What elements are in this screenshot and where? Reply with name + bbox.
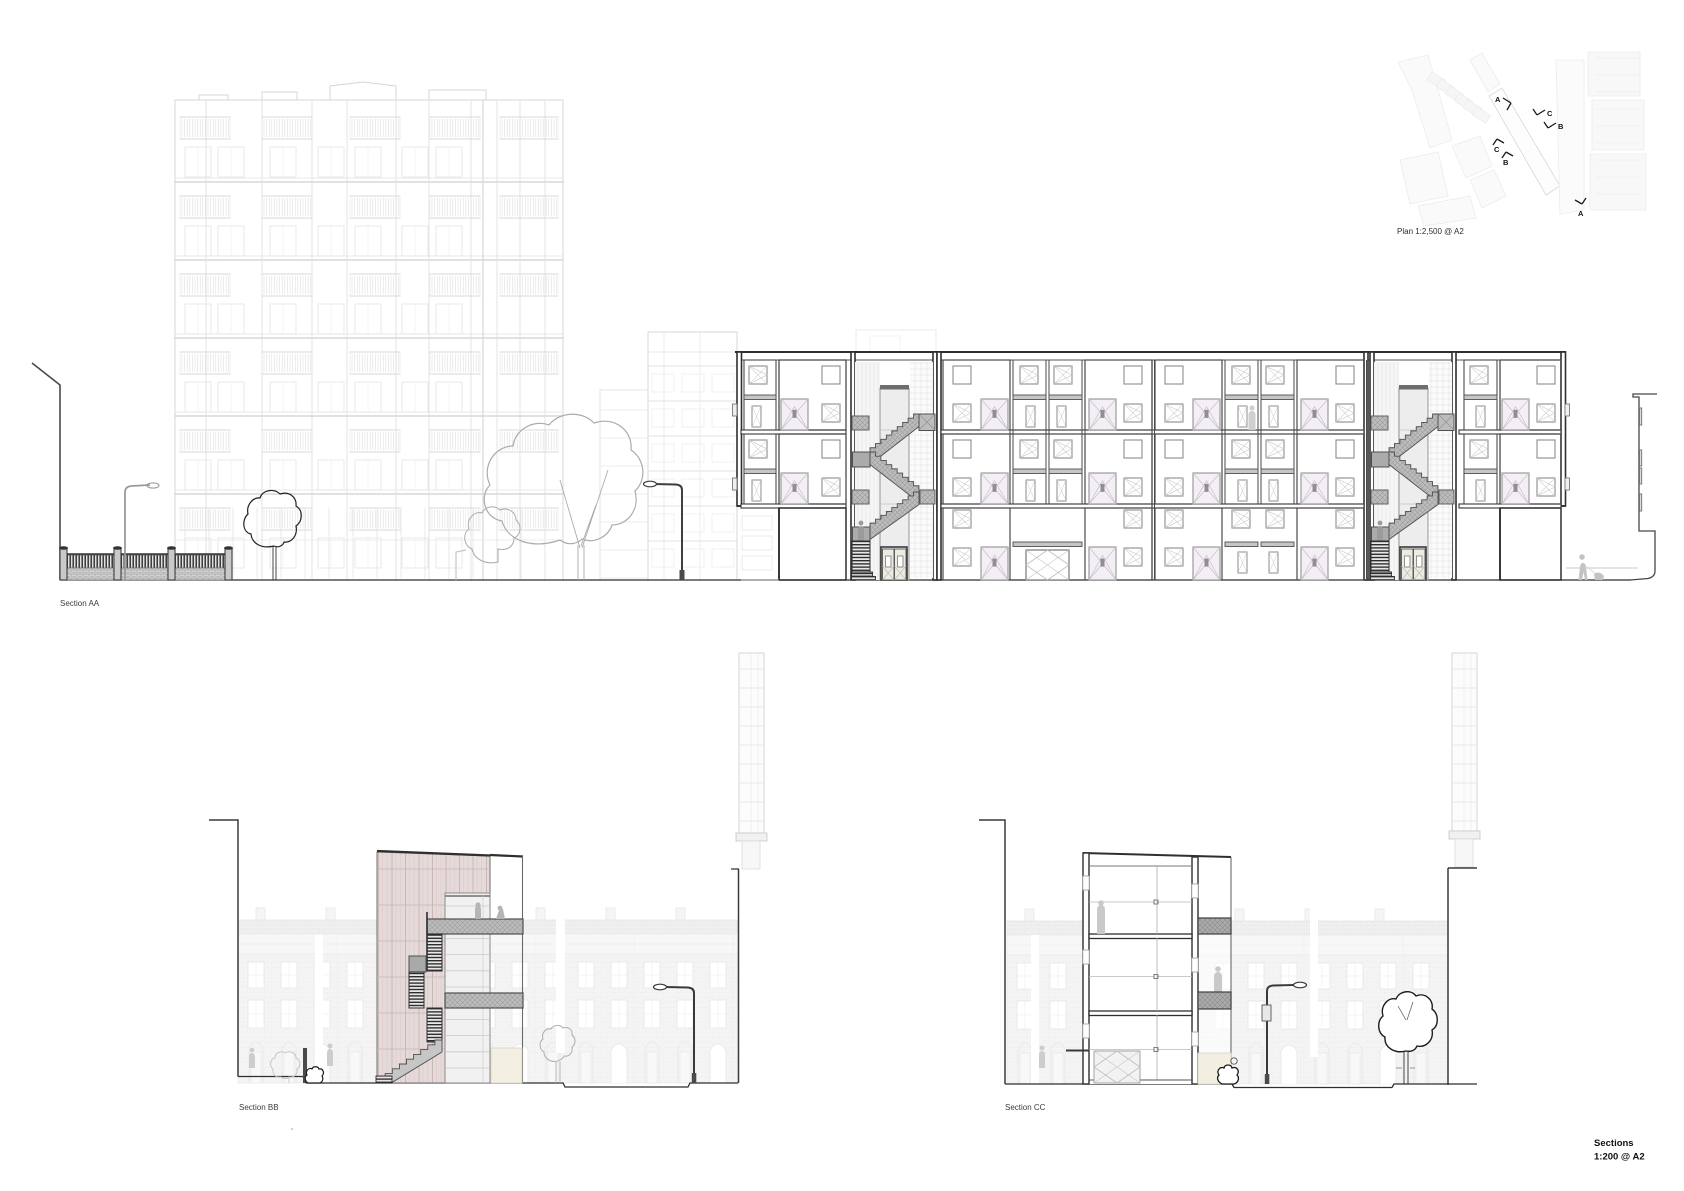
svg-text:Section CC: Section CC [1005,1103,1046,1112]
svg-text:C: C [1494,145,1500,154]
svg-text:B: B [1503,158,1509,167]
svg-text:C: C [1547,109,1553,118]
svg-text:1:200 @ A2: 1:200 @ A2 [1594,1152,1645,1163]
svg-text:B: B [1558,122,1564,131]
svg-text:Section AA: Section AA [60,599,100,608]
svg-text:Plan 1:2,500 @ A2: Plan 1:2,500 @ A2 [1397,227,1464,236]
svg-text:Sections: Sections [1594,1138,1634,1149]
svg-text:A: A [1578,209,1584,218]
svg-text:Section BB: Section BB [239,1103,279,1112]
svg-text:A: A [1495,95,1501,104]
